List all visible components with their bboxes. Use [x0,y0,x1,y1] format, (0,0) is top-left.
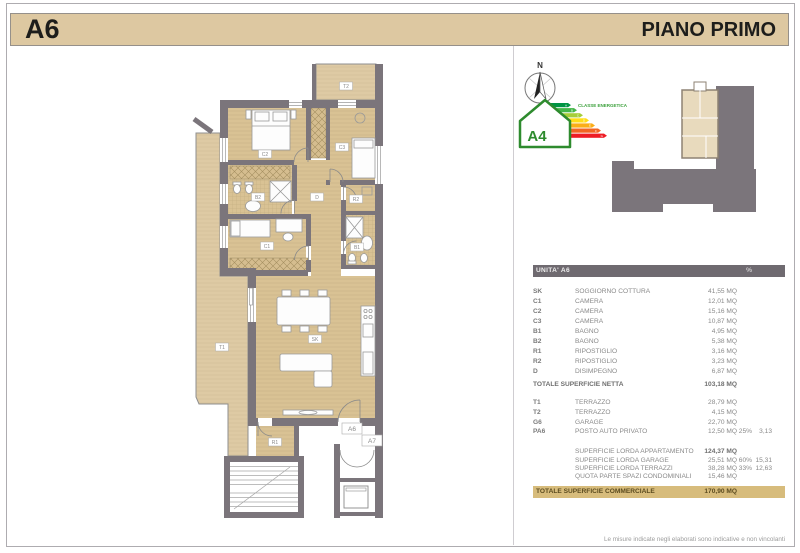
room-label-b2: B2 [252,193,265,201]
row-label: DISIMPEGNO [575,367,617,377]
door-label-a6: A6 [342,423,362,434]
room-label-r2: R2 [350,195,363,203]
row-code: PA6 [533,427,545,437]
row-code: R2 [533,357,541,367]
table-row: PA6POSTO AUTO PRIVATO12,50 MQ25%3,13 [533,427,785,437]
entry-landing [340,444,375,478]
energy-class-value: A4 [527,128,547,145]
table-row: C2CAMERA15,16 MQ [533,307,785,317]
row-value: 12,01 MQ [663,297,737,307]
table-title: UNITA' A6 [536,265,570,277]
row-label: RIPOSTIGLIO [575,347,617,357]
row-label: TOTALE SUPERFICIE NETTA [533,380,623,390]
room-label-d: D [311,193,324,201]
svg-text:C1: C1 [264,244,271,250]
row-share: 3,13 [752,427,772,437]
svg-text:SK: SK [312,337,319,343]
row-value: 10,87 MQ [663,317,737,327]
svg-text:D: D [315,195,319,201]
row-code: D [533,367,538,377]
row-value: 28,79 MQ [663,398,737,408]
row-code: T1 [533,398,541,408]
row-value: 15,46 MQ [663,472,737,482]
svg-text:T2: T2 [343,84,349,90]
table-row: DDISIMPEGNO6,87 MQ [533,367,785,377]
row-label: CAMERA [575,317,603,327]
energy-title: CLASSE ENERGETICA [578,103,628,108]
room-label-c2: C2 [259,150,272,158]
svg-text:R2: R2 [353,197,360,203]
row-code: B1 [533,327,541,337]
corridor-floor [311,160,341,276]
table-row: R2RIPOSTIGLIO3,23 MQ [533,357,785,367]
table-row: SKSOGGIORNO COTTURA41,55 MQ [533,287,785,297]
room-label-r1: R1 [269,438,282,446]
floor-plan: T2 C2 C3 B2 D R2 B1 C1 SK T1 R1 A6 A7 [194,64,383,518]
row-code: SK [533,287,542,297]
row-code: B2 [533,337,541,347]
table-row: T1TERRAZZO28,79 MQ [533,398,785,408]
svg-text:C2: C2 [262,152,269,158]
svg-text:N: N [537,61,543,70]
table-row: T2TERRAZZO4,15 MQ [533,408,785,418]
total-commercial-bar: TOTALE SUPERFICIE COMMERCIALE 170,90 MQ [533,486,785,498]
compass-icon: N [525,61,555,103]
row-code: C1 [533,297,541,307]
building-keyplan [612,82,756,212]
row-code: T2 [533,408,541,418]
svg-text:T1: T1 [219,345,225,351]
row-value: 6,87 MQ [663,367,737,377]
row-value: 41,55 MQ [663,287,737,297]
row-label: TERRAZZO [575,398,611,408]
row-label: CAMERA [575,307,603,317]
row-label: POSTO AUTO PRIVATO [575,427,647,437]
table-header: UNITA' A6 % [533,265,785,277]
row-label: TERRAZZO [575,408,611,418]
elevator [340,482,372,512]
total-commercial-value: 170,90 MQ [663,486,737,498]
plan-sheet: A6 PIANO PRIMO [0,0,800,553]
svg-text:B2: B2 [255,195,261,201]
row-value: 12,50 MQ [663,427,737,437]
svg-text:E: E [589,124,591,128]
total-commercial-label: TOTALE SUPERFICIE COMMERCIALE [536,486,655,498]
energy-class-icon: A B C D E F G CLASSE ENERGETICA A4 [520,100,628,147]
svg-text:R1: R1 [272,440,279,446]
row-value: 5,38 MQ [663,337,737,347]
row-label: BAGNO [575,337,599,347]
row-value: 3,23 MQ [663,357,737,367]
room-label-sk: SK [309,335,322,343]
row-code: R1 [533,347,541,357]
row-pct: 25% [737,427,752,437]
svg-text:B: B [571,108,573,112]
room-label-c1: C1 [261,242,274,250]
svg-text:A6: A6 [348,426,356,433]
svg-text:A7: A7 [368,438,376,445]
table-pct-header: % [737,265,752,277]
table-row: C3CAMERA10,87 MQ [533,317,785,327]
row-value: 15,16 MQ [663,307,737,317]
table-row: B1BAGNO4,95 MQ [533,327,785,337]
disclaimer-text: Le misure indicate negli elaborati sono … [433,536,785,543]
row-value: 3,16 MQ [663,347,737,357]
total-net-row: TOTALE SUPERFICIE NETTA103,18 MQ [533,380,785,390]
svg-text:F: F [595,129,597,133]
row-label: SOGGIORNO COTTURA [575,287,650,297]
svg-text:B1: B1 [354,245,360,251]
room-label-t2: T2 [340,82,353,90]
table-row: C1CAMERA12,01 MQ [533,297,785,307]
row-value: 4,15 MQ [663,408,737,418]
row-code: C3 [533,317,541,327]
row-label: RIPOSTIGLIO [575,357,617,367]
svg-text:C3: C3 [339,145,346,151]
row-value: 4,95 MQ [663,327,737,337]
door-label-a7: A7 [362,435,382,446]
room-label-b1: B1 [351,243,364,251]
table-row: R1RIPOSTIGLIO3,16 MQ [533,347,785,357]
row-label: BAGNO [575,327,599,337]
room-label-t1: T1 [216,343,229,351]
room-label-c3: C3 [336,143,349,151]
table-row: QUOTA PARTE SPAZI CONDOMINIALI15,46 MQ [533,472,785,482]
table-row: B2BAGNO5,38 MQ [533,337,785,347]
svg-text:A: A [565,103,567,107]
row-value: 103,18 MQ [663,380,737,390]
row-label: CAMERA [575,297,603,307]
stairwell [230,462,298,512]
row-code: C2 [533,307,541,317]
